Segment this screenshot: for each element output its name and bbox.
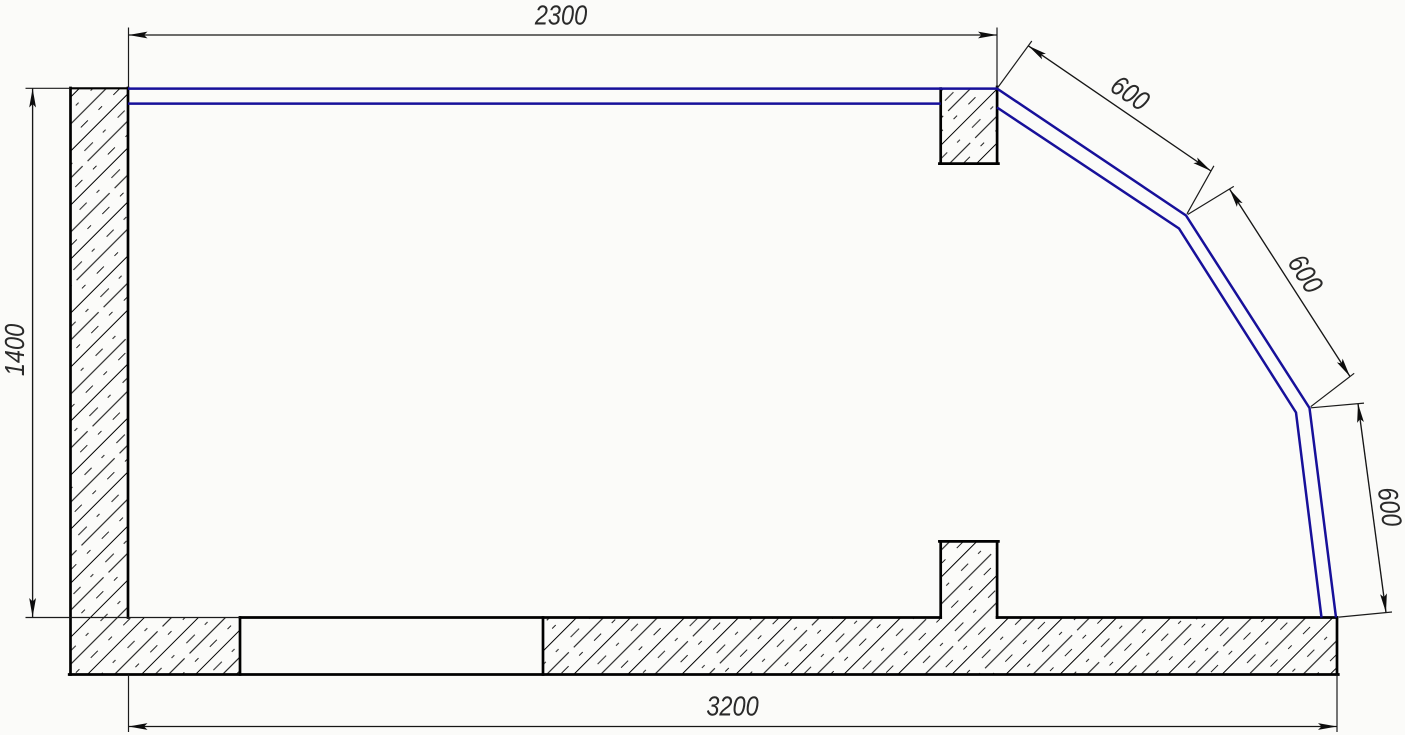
svg-text:2300: 2300 <box>534 1 588 31</box>
svg-text:1400: 1400 <box>0 323 30 376</box>
svg-text:600: 600 <box>1371 485 1405 528</box>
svg-text:3200: 3200 <box>706 692 759 722</box>
